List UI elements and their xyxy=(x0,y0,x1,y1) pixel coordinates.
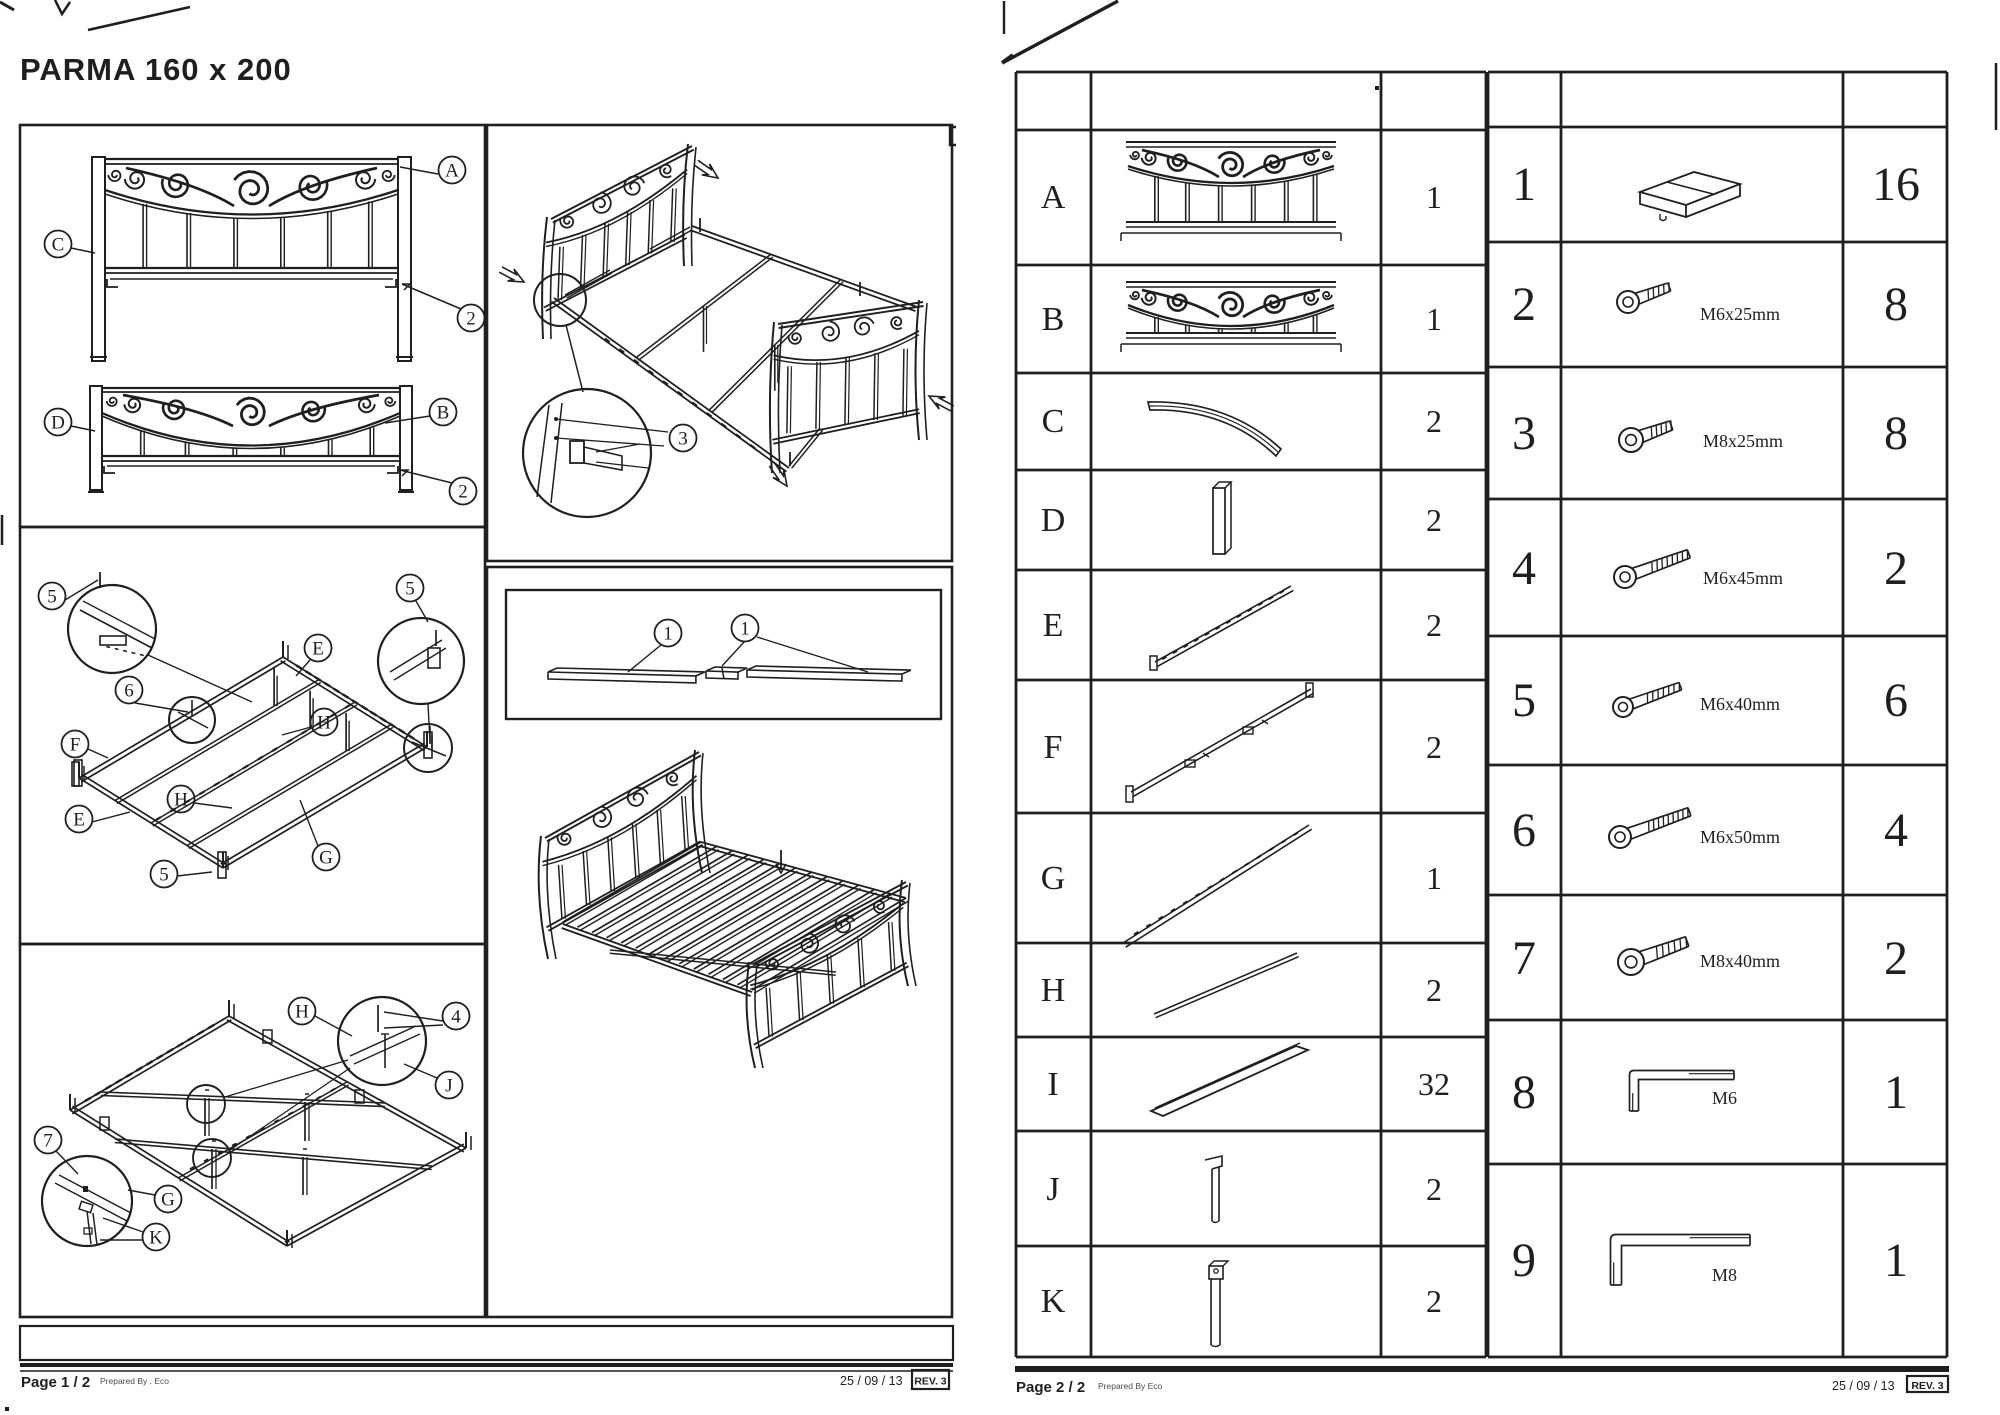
svg-text:H: H xyxy=(1041,972,1066,1009)
svg-text:2: 2 xyxy=(1426,502,1442,538)
svg-text:B: B xyxy=(1042,301,1065,338)
svg-text:3: 3 xyxy=(1512,407,1536,460)
svg-text:2: 2 xyxy=(1884,542,1908,595)
svg-text:5: 5 xyxy=(1512,674,1536,727)
svg-text:3: 3 xyxy=(678,429,688,450)
svg-text:16: 16 xyxy=(1872,158,1920,211)
svg-text:1: 1 xyxy=(1426,860,1442,896)
svg-text:E: E xyxy=(1043,607,1064,644)
svg-text:D: D xyxy=(51,413,65,434)
svg-text:Prepared By . Eco: Prepared By . Eco xyxy=(100,1376,169,1386)
svg-text:1: 1 xyxy=(1426,179,1442,215)
svg-text:4: 4 xyxy=(451,1007,461,1028)
svg-text:2: 2 xyxy=(1426,1283,1442,1319)
svg-text:5: 5 xyxy=(47,587,57,608)
svg-text:Page 2 / 2: Page 2 / 2 xyxy=(1016,1379,1085,1396)
svg-text:2: 2 xyxy=(1426,607,1442,643)
svg-text:32: 32 xyxy=(1418,1066,1450,1102)
svg-text:H: H xyxy=(317,713,331,734)
svg-text:I: I xyxy=(1047,1066,1058,1103)
svg-text:E: E xyxy=(312,639,324,660)
svg-text:6: 6 xyxy=(1884,674,1908,727)
svg-text:4: 4 xyxy=(1512,542,1536,595)
svg-text:Page 1 / 2: Page 1 / 2 xyxy=(21,1374,90,1391)
svg-text:M8x25mm: M8x25mm xyxy=(1703,431,1783,451)
svg-text:2: 2 xyxy=(1512,278,1536,331)
svg-text:2: 2 xyxy=(1426,729,1442,765)
svg-text:F: F xyxy=(70,735,81,756)
svg-text:4: 4 xyxy=(1884,804,1908,857)
svg-text:2: 2 xyxy=(466,309,476,330)
svg-text:9: 9 xyxy=(1512,1234,1536,1287)
svg-text:1: 1 xyxy=(1884,1234,1908,1287)
svg-text:J: J xyxy=(1046,1171,1059,1208)
svg-text:M6x45mm: M6x45mm xyxy=(1703,568,1783,588)
svg-text:C: C xyxy=(52,235,65,256)
svg-text:G: G xyxy=(161,1190,175,1211)
svg-text:M8x40mm: M8x40mm xyxy=(1700,951,1780,971)
svg-text:1: 1 xyxy=(1884,1066,1908,1119)
svg-text:M6x25mm: M6x25mm xyxy=(1700,304,1780,324)
svg-text:Prepared By Eco: Prepared By Eco xyxy=(1098,1381,1163,1391)
svg-text:1: 1 xyxy=(1426,301,1442,337)
svg-text:K: K xyxy=(149,1228,163,1249)
svg-text:REV. 3: REV. 3 xyxy=(1911,1380,1943,1392)
svg-text:1: 1 xyxy=(663,624,673,645)
svg-text:7: 7 xyxy=(1512,932,1536,985)
svg-text:PARMA 160 x 200: PARMA 160 x 200 xyxy=(20,52,292,87)
svg-text:A: A xyxy=(1041,179,1066,216)
svg-text:5: 5 xyxy=(159,865,169,886)
svg-text:2: 2 xyxy=(1884,932,1908,985)
svg-text:8: 8 xyxy=(1512,1066,1536,1119)
svg-text:C: C xyxy=(1042,403,1065,440)
svg-text:25 / 09 / 13: 25 / 09 / 13 xyxy=(840,1374,903,1388)
svg-text:H: H xyxy=(174,790,188,811)
svg-text:M6x50mm: M6x50mm xyxy=(1700,827,1780,847)
svg-text:M8: M8 xyxy=(1712,1265,1737,1285)
svg-text:6: 6 xyxy=(1512,804,1536,857)
svg-text:1: 1 xyxy=(740,619,750,640)
svg-text:E: E xyxy=(73,810,85,831)
svg-text:A: A xyxy=(445,161,459,182)
svg-text:8: 8 xyxy=(1884,278,1908,331)
svg-text:2: 2 xyxy=(1426,1171,1442,1207)
svg-text:H: H xyxy=(295,1002,309,1023)
svg-text:F: F xyxy=(1044,729,1063,766)
svg-text:K: K xyxy=(1041,1283,1066,1320)
svg-text:B: B xyxy=(437,403,450,424)
svg-text:D: D xyxy=(1041,502,1066,539)
svg-text:M6x40mm: M6x40mm xyxy=(1700,694,1780,714)
svg-text:2: 2 xyxy=(1426,972,1442,1008)
svg-text:J: J xyxy=(445,1076,452,1097)
svg-text:7: 7 xyxy=(43,1131,53,1152)
svg-text:M6: M6 xyxy=(1712,1088,1737,1108)
svg-text:1: 1 xyxy=(1512,158,1536,211)
svg-text:G: G xyxy=(1041,860,1066,897)
svg-text:6: 6 xyxy=(124,681,134,702)
svg-text:2: 2 xyxy=(1426,403,1442,439)
svg-text:5: 5 xyxy=(405,579,415,600)
svg-text:G: G xyxy=(319,848,333,869)
svg-text:REV. 3: REV. 3 xyxy=(914,1376,946,1388)
svg-text:2: 2 xyxy=(458,482,468,503)
svg-text:25 / 09 / 13: 25 / 09 / 13 xyxy=(1832,1379,1895,1393)
svg-text:8: 8 xyxy=(1884,407,1908,460)
